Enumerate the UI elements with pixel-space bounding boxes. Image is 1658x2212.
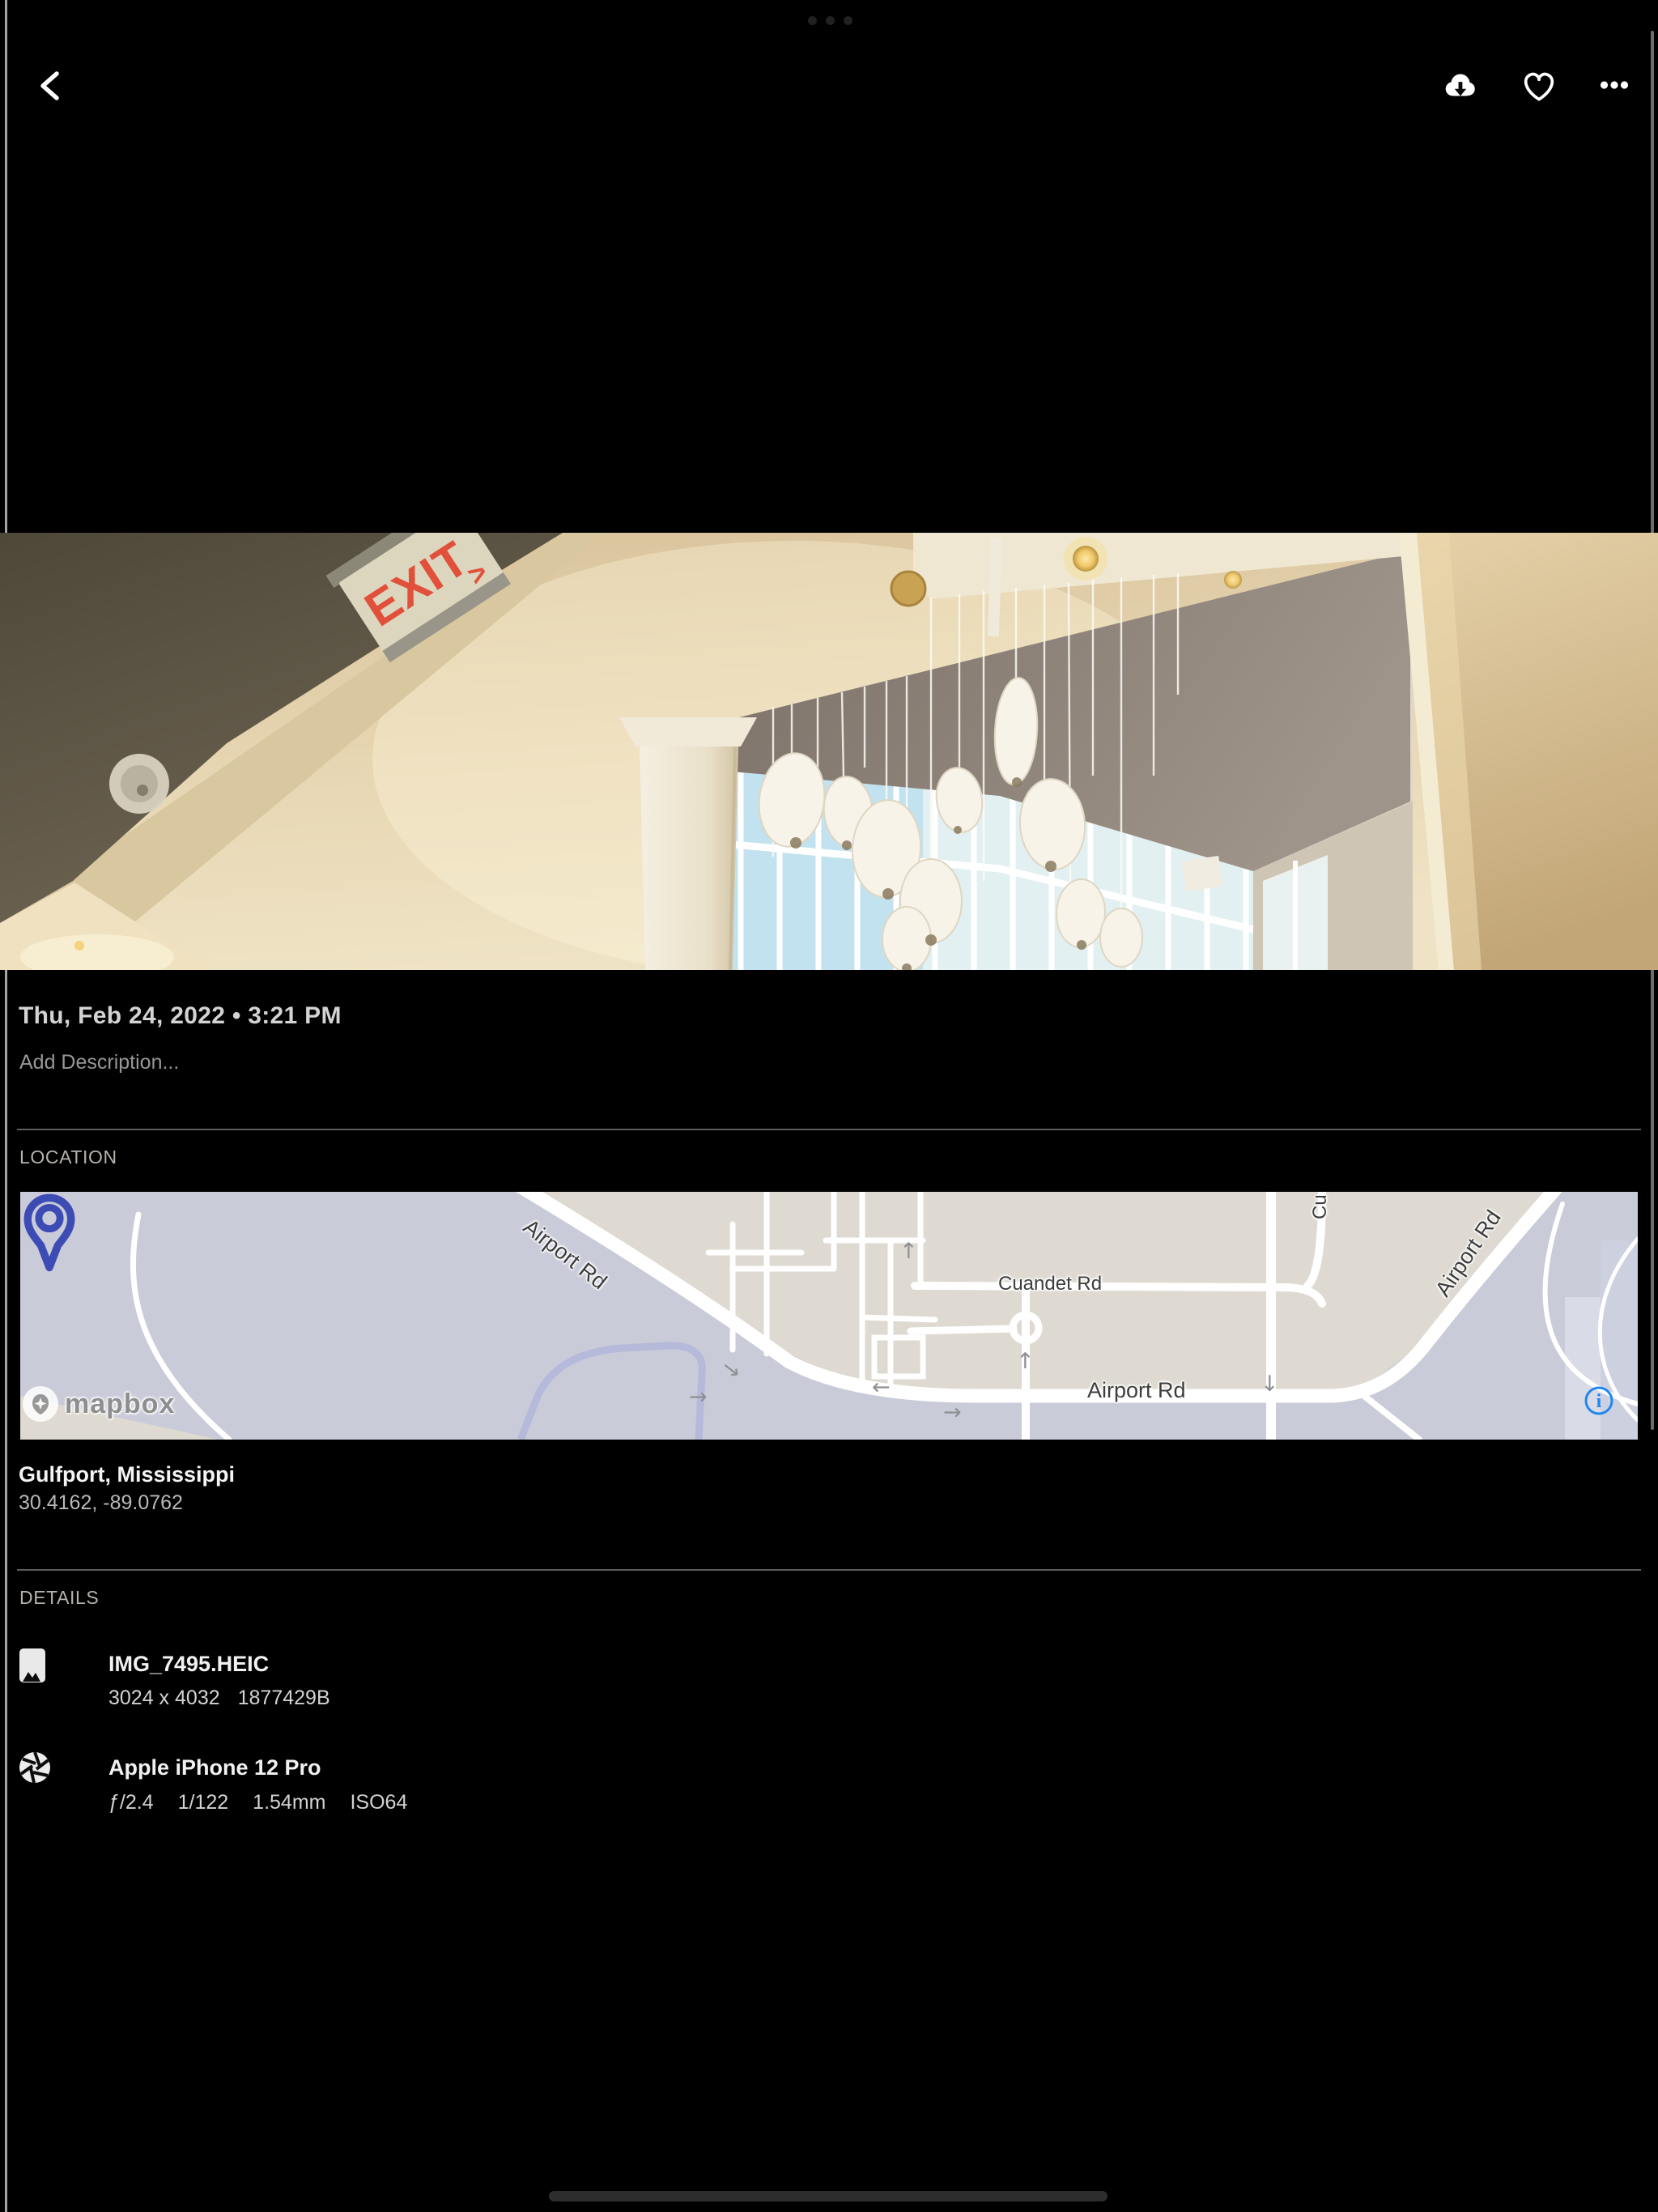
download-button[interactable]: [1439, 65, 1480, 105]
home-indicator[interactable]: [549, 2191, 1107, 2201]
mapbox-attribution[interactable]: mapbox: [23, 1386, 175, 1422]
heart-icon: [1519, 65, 1559, 105]
map-info-button[interactable]: i: [1583, 1385, 1615, 1417]
photo-detail-screen: EXIT > Thu, Feb 24, 2022 • 3:21 PM Add D…: [0, 0, 1658, 2212]
chevron-left-icon: [34, 68, 70, 104]
file-size: 1877429B: [238, 1687, 330, 1710]
svg-text:←: ←: [872, 1375, 891, 1400]
file-dimensions: 3024 x 4032: [108, 1687, 220, 1710]
image-file-icon: [19, 1648, 45, 1682]
more-options-button[interactable]: [1594, 65, 1635, 105]
ellipsis-icon: [1594, 65, 1635, 105]
back-button[interactable]: [32, 66, 71, 105]
gold-medallion: [891, 572, 925, 606]
camera-name: Apple iPhone 12 Pro: [108, 1755, 321, 1780]
wall-speaker: [1182, 856, 1223, 891]
exif-focal-length: 1.54mm: [253, 1791, 325, 1814]
svg-text:i: i: [1596, 1391, 1602, 1412]
add-description-field[interactable]: Add Description...: [19, 1051, 179, 1074]
location-map[interactable]: →←→ ↑↑↓ → Airport Rd Cuandet Rd Airport …: [20, 1192, 1638, 1440]
cloud-download-icon: [1439, 65, 1480, 105]
location-section-label: LOCATION: [19, 1146, 117, 1168]
right-wall: [1399, 533, 1658, 970]
exif-iso: ISO64: [350, 1791, 407, 1814]
mapbox-logo-icon: [23, 1386, 58, 1422]
photo-date: Thu, Feb 24, 2022 • 3:21 PM: [19, 1002, 342, 1030]
exif-shutter: 1/122: [178, 1791, 229, 1814]
recessed-light: [1073, 546, 1099, 572]
recessed-light: [1224, 571, 1242, 589]
divider: [17, 1129, 1641, 1130]
favorite-button[interactable]: [1519, 65, 1559, 105]
map-pin-icon: [20, 1192, 79, 1278]
map-road-label: Airport Rd: [1087, 1378, 1186, 1403]
svg-text:↑: ↑: [1016, 1349, 1035, 1374]
map-road-label: Cuandet Rd: [998, 1273, 1102, 1295]
location-coordinates: 30.4162, -89.0762: [19, 1491, 183, 1515]
location-place: Gulfport, Mississippi: [19, 1462, 235, 1487]
file-name: IMG_7495.HEIC: [108, 1652, 269, 1677]
info-circle-icon: i: [1583, 1385, 1615, 1417]
window-edge-highlight: [5, 0, 7, 2212]
divider: [17, 1569, 1641, 1571]
svg-text:→: →: [943, 1400, 962, 1425]
multitask-dots-icon[interactable]: [808, 16, 852, 25]
svg-text:↑: ↑: [899, 1239, 918, 1264]
exif-aperture: ƒ/2.4: [108, 1791, 154, 1814]
details-section-label: DETAILS: [19, 1587, 99, 1609]
map-road-label: Cu: [1309, 1194, 1332, 1219]
svg-text:↓: ↓: [1261, 1372, 1279, 1397]
svg-text:→: →: [689, 1385, 708, 1410]
map-areas: [20, 1192, 1638, 1440]
mapbox-wordmark: mapbox: [65, 1389, 175, 1420]
camera-exif: ƒ/2.4 1/122 1.54mm ISO64: [108, 1791, 407, 1814]
smoke-detector: [109, 754, 169, 814]
file-subtitle: 3024 x 4032 1877429B: [108, 1687, 330, 1710]
photo-viewer[interactable]: EXIT >: [0, 533, 1658, 970]
aperture-icon: [18, 1750, 52, 1784]
